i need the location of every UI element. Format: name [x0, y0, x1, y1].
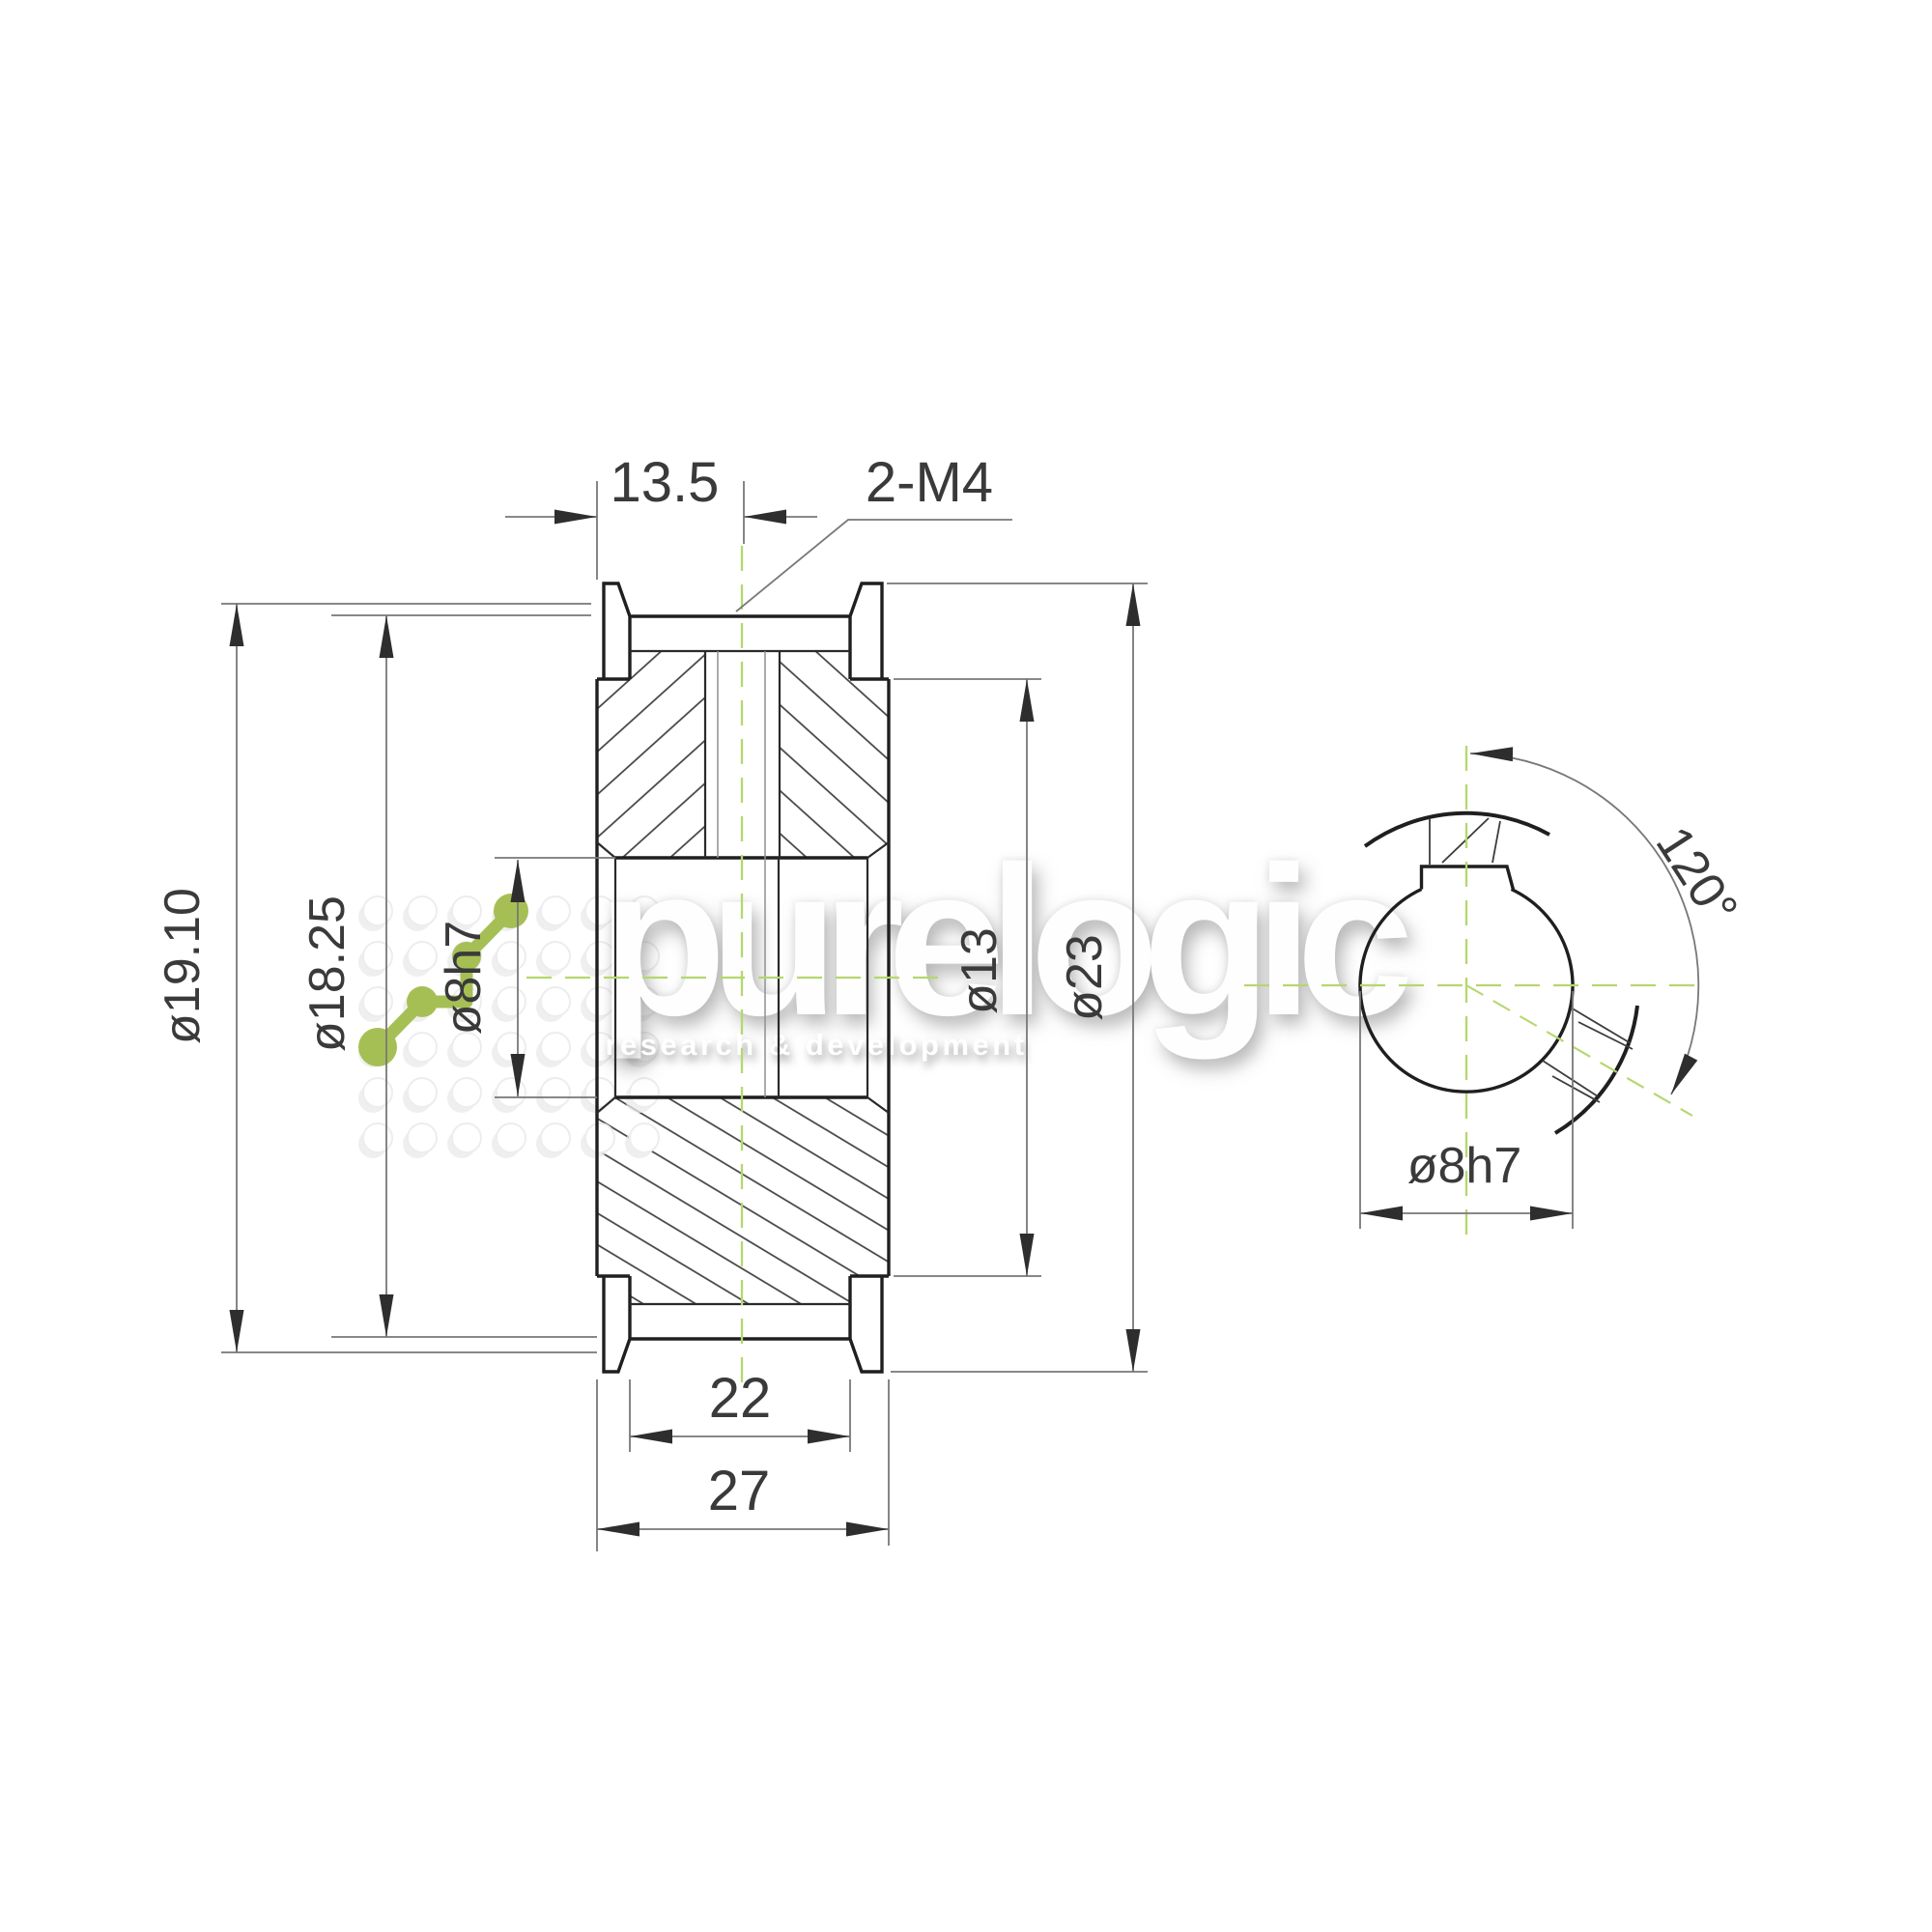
watermark-tagline-text: research & development: [605, 1028, 1027, 1062]
dim-belt-width: 22: [709, 1367, 772, 1430]
dim-outside-diameter: ø18.25: [299, 895, 355, 1052]
dim-screw-spec: 2-M4: [866, 451, 993, 514]
dim-bore-side: ø8h7: [436, 921, 492, 1036]
screw-leader-line: [736, 520, 1012, 611]
angle-dimension-arc: [1470, 753, 1698, 1094]
dim-face-to-screw: 13.5: [611, 451, 720, 514]
dim-overall-width: 27: [708, 1460, 771, 1522]
dim-pitch-diameter: ø19.10: [155, 888, 211, 1044]
dim-hub-diameter: ø13: [952, 927, 1008, 1014]
screw-axis-120deg: [1466, 985, 1692, 1116]
dim-flange-diameter: ø23: [1057, 934, 1113, 1021]
technical-drawing: purelogic research & development: [0, 0, 1932, 1932]
dim-screw-angle: 120°: [1645, 817, 1748, 935]
end-view: [1360, 813, 1637, 1133]
drawing-canvas: purelogic research & development: [0, 0, 1932, 1932]
dim-bore-end: ø8h7: [1407, 1138, 1522, 1194]
set-screw-hole-top: [1430, 818, 1500, 865]
